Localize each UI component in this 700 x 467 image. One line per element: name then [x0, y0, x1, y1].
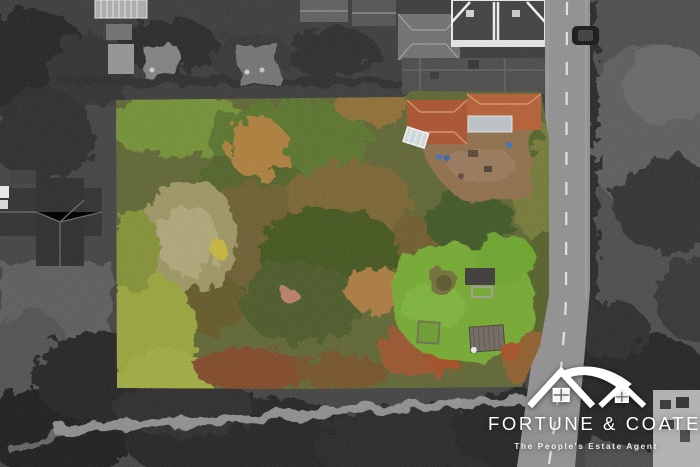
- brand-tagline: The People's Estate Agent: [488, 441, 684, 451]
- brand-logo: FORTUNE & COATES The People's Estate Age…: [488, 359, 684, 451]
- twin-houses-icon: [523, 359, 649, 409]
- brand-name: FORTUNE & COATES: [488, 413, 684, 435]
- aerial-photo-canvas: FORTUNE & COATES The People's Estate Age…: [0, 0, 700, 467]
